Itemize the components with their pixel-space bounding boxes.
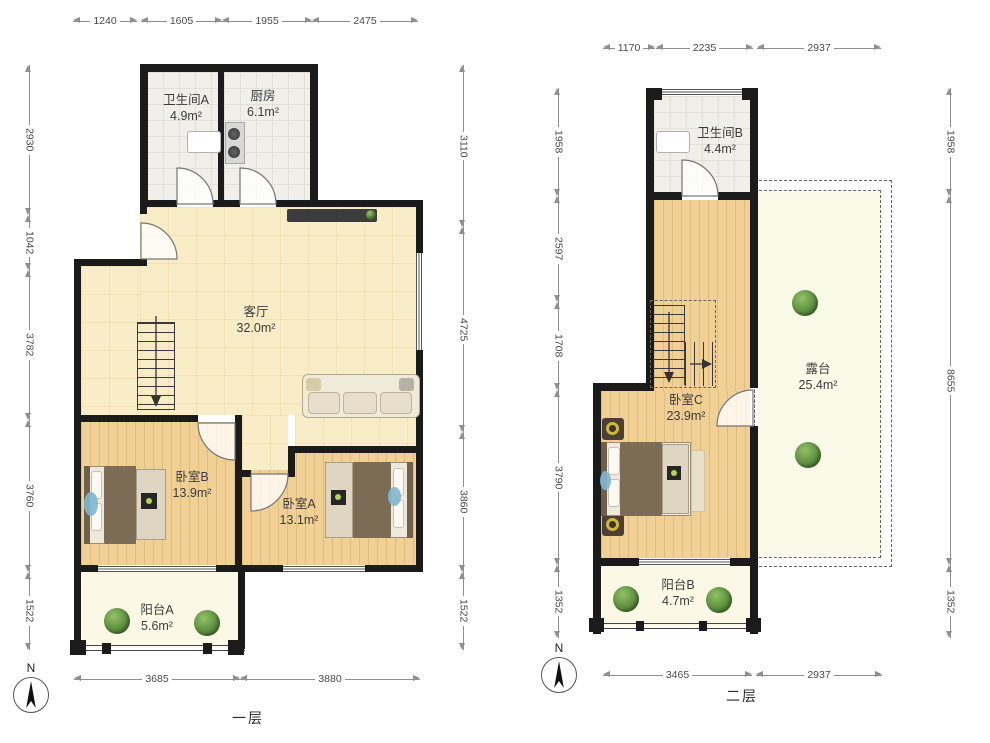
wall [646, 88, 654, 200]
railing-post [746, 618, 761, 632]
railing-post [699, 621, 707, 631]
compass-circle [541, 657, 577, 693]
floor-plan-canvas: 卫生间A 4.9m² 厨房 6.1m² 客厅 32.0m² 卧室B 13.9m²… [0, 0, 990, 743]
indicator-dot [671, 470, 677, 476]
room-label-bedroom-c: 卧室C 23.9m² [667, 392, 706, 425]
dimension-value: 1958 [553, 127, 564, 156]
compass: N [541, 642, 577, 693]
room-name: 卧室C [667, 392, 706, 408]
dimension-value: 2597 [553, 234, 564, 263]
dimension-value: 1708 [553, 331, 564, 360]
dimension: 1352 [551, 565, 565, 638]
dimension: 2937 [757, 41, 881, 55]
dimension: 1170 [603, 41, 655, 55]
dimension-value: 1958 [945, 127, 956, 156]
room-label-terrace: 露台 25.4m² [799, 361, 838, 394]
dimension-value: 1352 [553, 587, 564, 616]
floor-label-2: 二层 [726, 686, 758, 706]
wall [750, 426, 758, 566]
washbasin [656, 131, 690, 153]
room-name: 露台 [799, 361, 838, 377]
nightstand-lamp [606, 422, 619, 435]
dimension-value: 1352 [945, 587, 956, 616]
dimension-value: 2937 [804, 670, 833, 681]
plant [613, 586, 639, 612]
dimension: 2937 [756, 668, 882, 682]
wall [593, 383, 654, 391]
dimension-value: 2937 [804, 43, 833, 54]
railing-post [589, 618, 604, 632]
dimension: 1958 [943, 88, 957, 196]
room-name: 卫生间B [697, 125, 743, 141]
plant [792, 290, 818, 316]
dimension: 2597 [551, 196, 565, 302]
room-name: 阳台B [661, 577, 694, 593]
staircase [685, 342, 713, 386]
wall [750, 88, 758, 200]
compass-n-label: N [541, 642, 577, 654]
dimension: 3465 [603, 668, 752, 682]
dimension: 1352 [943, 565, 957, 638]
room-area: 23.9m² [667, 408, 706, 424]
railing-post [636, 621, 644, 631]
plant [795, 442, 821, 468]
staircase [653, 305, 685, 385]
balcony-railing [593, 623, 758, 629]
room-area: 25.4m² [799, 377, 838, 393]
wall [593, 383, 601, 566]
plant [706, 587, 732, 613]
wall [750, 192, 758, 388]
dimension-value: 3465 [663, 670, 692, 681]
dimension: 8655 [943, 196, 957, 565]
room-area: 4.7m² [661, 593, 694, 609]
nightstand-lamp [606, 518, 619, 531]
dimension: 1708 [551, 302, 565, 390]
second-floor-plan: 卫生间B 4.4m² 卧室C 23.9m² 露台 25.4m² 阳台B 4.7m… [0, 0, 990, 743]
rug [600, 471, 611, 490]
room-area: 4.4m² [697, 141, 743, 157]
dimension-value: 2235 [690, 43, 719, 54]
window [662, 89, 742, 95]
dimension: 2235 [656, 41, 753, 55]
dimension-value: 3790 [553, 463, 564, 492]
compass-needle-icon [552, 661, 567, 688]
window [639, 559, 730, 565]
room-label-bathroom-b: 卫生间B 4.4m² [697, 125, 743, 158]
dimension-value: 1170 [615, 43, 644, 54]
rug [691, 450, 705, 512]
dimension-value: 8655 [945, 366, 956, 395]
room-label-balcony-b: 阳台B 4.7m² [661, 577, 694, 610]
dimension: 3790 [551, 390, 565, 565]
bed-pillow [608, 447, 620, 475]
dimension: 1958 [551, 88, 565, 196]
bed-duvet [620, 442, 662, 516]
